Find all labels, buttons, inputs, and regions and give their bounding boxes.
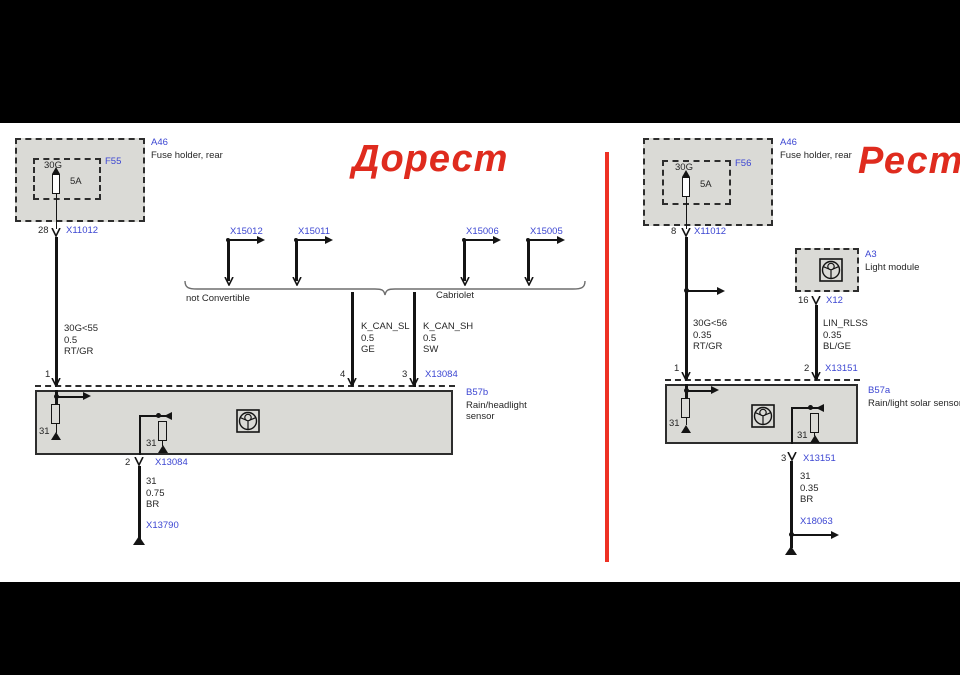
wire-size: 0.5 — [64, 335, 98, 347]
wire-label: 30G<56 0.35 RT/GR — [693, 318, 727, 353]
connector-chevron-icon — [50, 378, 62, 387]
wire-size: 0.35 — [823, 330, 868, 342]
component-ref: B57b — [466, 387, 488, 398]
arrow-right-icon — [831, 531, 839, 539]
wire-size: 0.35 — [693, 330, 727, 342]
connector-chevron-icon — [786, 452, 798, 461]
wire-signal: K_CAN_SL — [361, 321, 410, 333]
arrow-right-icon — [711, 386, 719, 394]
component-desc: Fuse holder, rear — [780, 150, 852, 161]
pin-number: 8 — [671, 226, 676, 237]
wire-color: SW — [423, 344, 473, 356]
wire — [527, 239, 530, 281]
light-module-icon — [819, 258, 843, 282]
resistor-icon — [810, 413, 819, 433]
connector-boundary — [665, 379, 860, 381]
component-ref: A46 — [151, 137, 168, 148]
wire-color: BL/GE — [823, 341, 868, 353]
pin-number: 1 — [674, 363, 679, 374]
can-high-wire — [413, 292, 416, 387]
connector-label: X13084 — [155, 457, 188, 468]
ground-wire — [138, 466, 141, 540]
wire — [791, 407, 793, 444]
wire-size: 0.5 — [361, 333, 410, 345]
splice-label: X13790 — [146, 520, 179, 531]
terminal-label: 31 — [39, 426, 50, 437]
resistor-icon — [51, 404, 60, 424]
wire-label: 31 0.75 BR — [146, 476, 165, 511]
arrow-right-icon — [325, 236, 333, 244]
lin-wire — [815, 305, 818, 381]
connector-chevron-icon — [680, 228, 692, 237]
junction-dot — [808, 405, 813, 410]
wire — [686, 197, 687, 229]
title-pre-facelift: Дорест — [352, 138, 508, 181]
wire-size: 0.35 — [800, 483, 819, 495]
rain-sensor-icon — [236, 409, 260, 433]
fuse-icon — [682, 170, 690, 177]
arrow-right-icon — [493, 236, 501, 244]
resistor-icon — [158, 421, 167, 441]
connector-label: X13151 — [825, 363, 858, 374]
wire — [57, 396, 83, 398]
wire — [527, 239, 557, 241]
wire — [227, 239, 230, 281]
fuse-ref: F55 — [105, 156, 121, 167]
wire-signal: LIN_RLSS — [823, 318, 868, 330]
fuse-rating: 5A — [700, 179, 712, 190]
wire — [139, 415, 141, 455]
wire-signal: 30G<55 — [64, 323, 98, 335]
component-ref: B57a — [868, 385, 890, 396]
wire — [793, 534, 831, 536]
wire-signal: 31 — [146, 476, 165, 488]
pin-number: 4 — [340, 369, 345, 380]
wire-label: LIN_RLSS 0.35 BL/GE — [823, 318, 868, 353]
arrow-right-icon — [83, 392, 91, 400]
connector-chevron-icon — [810, 372, 822, 381]
fuse-icon — [52, 167, 60, 174]
wire — [463, 239, 466, 281]
wire-color: BR — [146, 499, 165, 511]
ground-arrow-icon — [158, 445, 168, 453]
connector-chevron-icon — [50, 228, 62, 237]
component-ref: A46 — [780, 137, 797, 148]
fuse-ref: F56 — [735, 158, 751, 169]
fuse-box — [662, 160, 731, 205]
pin-number: 3 — [402, 369, 407, 380]
wiring-diagram-screenshot: Дорест Рест 30G 5A F55 A46 Fuse holder, … — [0, 0, 960, 675]
fuse-icon — [682, 177, 690, 197]
wire-label: 30G<55 0.5 RT/GR — [64, 323, 98, 358]
arrow-right-icon — [717, 287, 725, 295]
wire-label: K_CAN_SH 0.5 SW — [423, 321, 473, 356]
component-desc: Rain/headlight sensor — [466, 400, 554, 422]
wire-signal: K_CAN_SH — [423, 321, 473, 333]
arrow-left-icon — [164, 412, 172, 420]
junction-dot — [156, 413, 161, 418]
pin-number: 28 — [38, 225, 49, 236]
divider-line — [605, 152, 609, 562]
wire — [227, 239, 257, 241]
rain-sensor-icon — [751, 404, 775, 428]
connector-boundary — [35, 385, 455, 387]
connector-label: X13151 — [803, 453, 836, 464]
connector-label: X11012 — [694, 226, 726, 237]
wire — [295, 239, 298, 281]
connector-chevron-icon — [680, 372, 692, 381]
connector-label: X12 — [826, 295, 843, 306]
variant-label: not Convertible — [186, 293, 250, 304]
connector-chevron-icon — [810, 296, 822, 305]
wire-color: RT/GR — [64, 346, 98, 358]
pin-number: 2 — [125, 457, 130, 468]
wire — [295, 239, 325, 241]
wire — [56, 194, 57, 229]
arrow-right-icon — [557, 236, 565, 244]
splice-label: X18063 — [800, 516, 833, 527]
ground-arrow-icon — [681, 425, 691, 433]
terminal-label: 31 — [797, 430, 808, 441]
component-desc: Rain/light solar sensor — [868, 398, 960, 409]
component-ref: A3 — [865, 249, 877, 260]
arrow-left-icon — [816, 404, 824, 412]
wire-label: K_CAN_SL 0.5 GE — [361, 321, 410, 356]
connector-chevron-icon — [133, 457, 145, 466]
pin-number: 2 — [804, 363, 809, 374]
ground-arrow-icon — [810, 435, 820, 443]
arrow-right-icon — [257, 236, 265, 244]
ground-arrow-icon — [51, 432, 61, 440]
fuse-rating: 5A — [70, 176, 82, 187]
pin-number: 16 — [798, 295, 809, 306]
terminal-label: 31 — [146, 438, 157, 449]
resistor-icon — [681, 398, 690, 418]
wire-color: GE — [361, 344, 410, 356]
wire — [463, 239, 493, 241]
wire-size: 0.75 — [146, 488, 165, 500]
component-desc: Light module — [865, 262, 919, 273]
wire — [686, 418, 687, 425]
ground-point-icon — [133, 536, 145, 545]
wire-color: BR — [800, 494, 819, 506]
wire — [687, 290, 717, 292]
can-low-wire — [351, 292, 354, 387]
wire-color: RT/GR — [693, 341, 727, 353]
connector-chevron-icon — [346, 378, 358, 387]
connector-label: X13084 — [425, 369, 458, 380]
wire-size: 0.5 — [423, 333, 473, 345]
wire-label: 31 0.35 BR — [800, 471, 819, 506]
terminal-label: 31 — [669, 418, 680, 429]
connector-chevron-icon — [408, 378, 420, 387]
supply-wire — [685, 237, 688, 381]
component-desc: Fuse holder, rear — [151, 150, 223, 161]
title-facelift: Рест — [858, 140, 960, 183]
supply-wire — [55, 237, 58, 387]
ground-point-icon — [785, 546, 797, 555]
wire — [687, 390, 711, 392]
variant-label: Cabriolet — [436, 290, 474, 301]
fuse-icon — [52, 174, 60, 194]
connector-label: X11012 — [66, 225, 98, 236]
wire-signal: 31 — [800, 471, 819, 483]
wire-signal: 30G<56 — [693, 318, 727, 330]
